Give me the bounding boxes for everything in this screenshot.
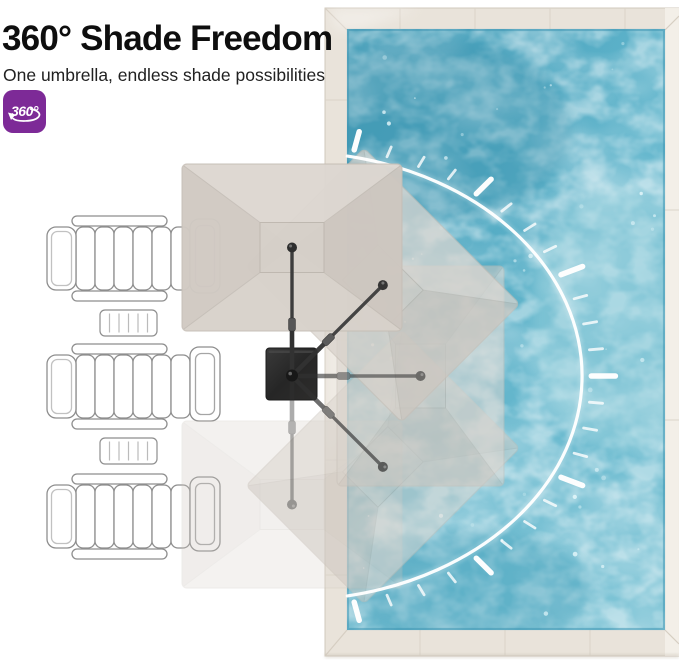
pool-scene-illustration <box>0 0 679 662</box>
page-subtitle: One umbrella, endless shade possibilitie… <box>3 65 322 85</box>
water-sparkle <box>550 84 552 86</box>
water-sparkle <box>605 348 607 350</box>
water-sparkle <box>523 493 526 496</box>
water-sparkle <box>496 108 498 110</box>
water-sparkle <box>382 110 386 114</box>
rotate-360-badge: 360° <box>3 90 46 133</box>
water-sparkle <box>523 269 526 272</box>
water-sparkle <box>601 565 604 568</box>
water-sparkle <box>639 192 642 195</box>
side-table-2 <box>100 438 157 464</box>
water-sparkle <box>573 495 577 499</box>
water-sparkle <box>640 358 644 362</box>
water-sparkle <box>621 42 624 45</box>
water-sparkle <box>382 55 387 60</box>
page-title: 360° Shade Freedom <box>2 21 322 57</box>
water-sparkle <box>601 475 606 480</box>
lounge-chair-2 <box>47 344 220 429</box>
water-sparkle <box>651 228 654 231</box>
headline-block: 360° Shade Freedom One umbrella, endless… <box>2 21 322 86</box>
pole-hub <box>286 370 298 382</box>
water-sparkle <box>414 97 416 99</box>
water-sparkle <box>612 69 614 71</box>
rotation-tick-minor <box>589 349 602 350</box>
water-sparkle <box>471 523 475 527</box>
water-sparkle <box>573 552 578 557</box>
water-sparkle <box>544 611 548 615</box>
water-sparkle <box>444 156 448 160</box>
badge-label: 360° <box>3 103 46 119</box>
side-table-1 <box>100 310 157 336</box>
rotation-tick-minor <box>589 402 602 403</box>
water-sparkle <box>520 344 523 347</box>
water-sparkle <box>631 221 635 225</box>
water-sparkle <box>579 204 583 208</box>
water-sparkle <box>595 468 599 472</box>
water-sparkle <box>578 505 581 508</box>
water-sparkle <box>588 388 593 393</box>
water-sparkle <box>637 548 639 550</box>
water-sparkle <box>387 121 391 125</box>
water-sparkle <box>653 214 656 217</box>
water-sparkle <box>513 259 516 262</box>
water-sparkle <box>461 133 464 136</box>
water-sparkle <box>544 86 546 88</box>
